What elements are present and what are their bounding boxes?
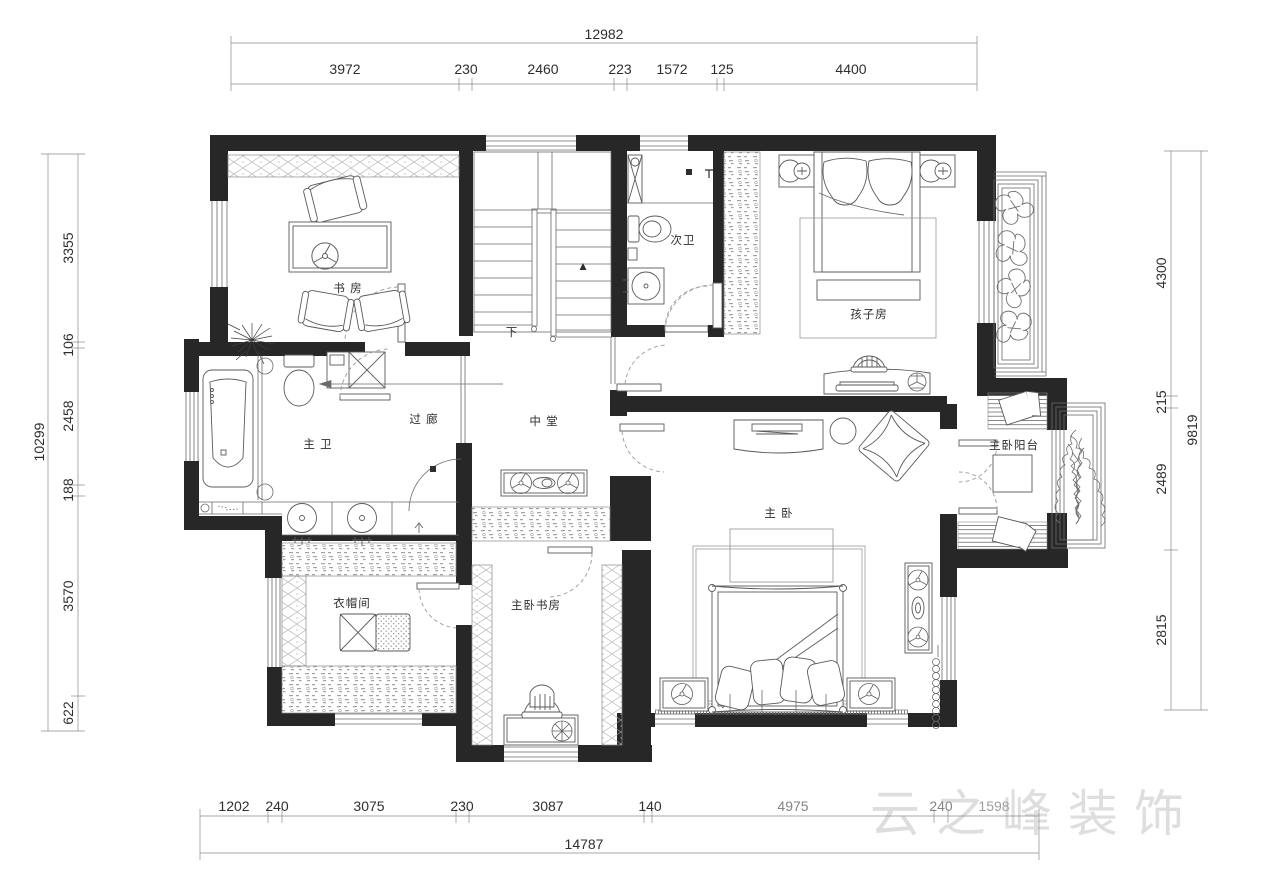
svg-text:过 廊: 过 廊: [409, 412, 438, 426]
svg-text:1572: 1572: [656, 61, 687, 77]
svg-text:106: 106: [60, 333, 76, 357]
svg-text:下: 下: [506, 327, 519, 339]
svg-text:4400: 4400: [835, 61, 866, 77]
svg-text:10299: 10299: [31, 422, 47, 461]
svg-text:125: 125: [710, 61, 734, 77]
svg-text:4975: 4975: [777, 798, 808, 814]
svg-text:1598: 1598: [978, 798, 1009, 814]
svg-text:云之峰装饰: 云之峰装饰: [870, 786, 1200, 842]
svg-text:230: 230: [454, 61, 478, 77]
svg-text:主 卫: 主 卫: [303, 438, 332, 451]
svg-text:14787: 14787: [565, 836, 604, 852]
svg-text:223: 223: [608, 61, 632, 77]
svg-text:240: 240: [265, 798, 289, 814]
svg-text:215: 215: [1153, 390, 1169, 414]
svg-text:3570: 3570: [60, 580, 76, 611]
svg-text:188: 188: [60, 478, 76, 502]
svg-text:2460: 2460: [527, 61, 558, 77]
svg-text:3355: 3355: [60, 232, 76, 263]
svg-text:中 堂: 中 堂: [529, 415, 558, 428]
svg-text:230: 230: [450, 798, 474, 814]
svg-text:孩子房: 孩子房: [850, 308, 888, 321]
svg-text:9819: 9819: [1184, 414, 1200, 445]
svg-text:衣帽间: 衣帽间: [333, 596, 371, 610]
svg-text:622: 622: [60, 701, 76, 725]
svg-text:2489: 2489: [1153, 463, 1169, 494]
svg-text:240: 240: [929, 798, 953, 814]
svg-text:2815: 2815: [1153, 614, 1169, 645]
svg-text:140: 140: [638, 798, 662, 814]
svg-text:3075: 3075: [353, 798, 384, 814]
svg-text:3972: 3972: [329, 61, 360, 77]
svg-text:次卫: 次卫: [671, 233, 696, 247]
svg-text:2458: 2458: [60, 400, 76, 431]
svg-text:主卧书房: 主卧书房: [511, 599, 561, 612]
svg-text:3087: 3087: [532, 798, 563, 814]
svg-text:4300: 4300: [1153, 257, 1169, 288]
svg-text:1202: 1202: [218, 798, 249, 814]
svg-text:主卧阳台: 主卧阳台: [989, 438, 1039, 452]
svg-text:12982: 12982: [585, 26, 624, 42]
svg-text:书 房: 书 房: [333, 282, 362, 295]
svg-text:主 卧: 主 卧: [764, 507, 793, 520]
